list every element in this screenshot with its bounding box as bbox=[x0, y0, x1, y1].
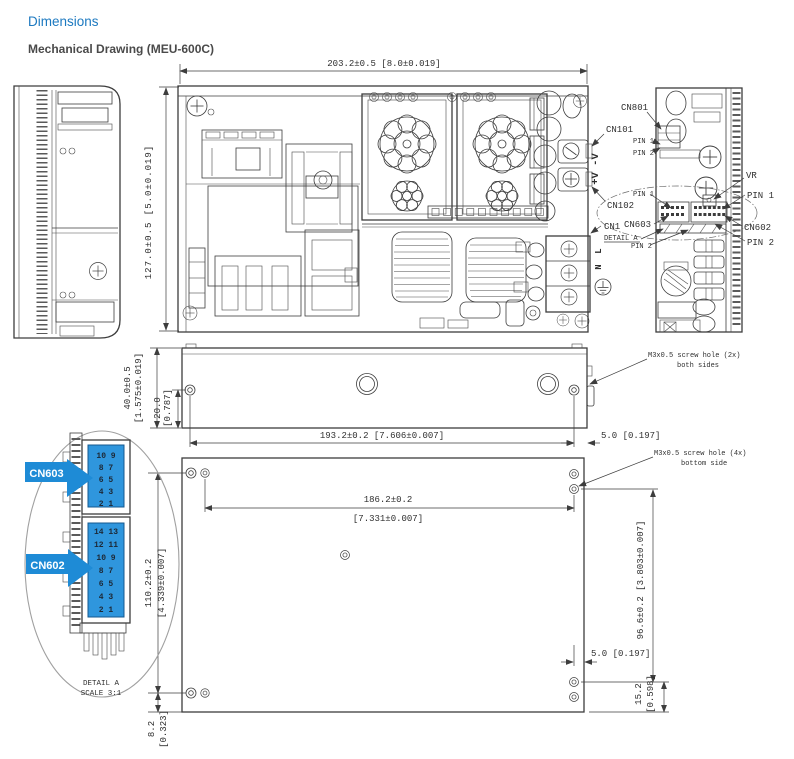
edge-mm: 8.2 bbox=[147, 721, 157, 737]
side-view-dimensions: 40.0±0.5 [1.575±0.019] 20.0 [0.787] 193.… bbox=[123, 348, 740, 447]
ground-symbol-icon bbox=[595, 279, 611, 295]
phillips-screw-icon bbox=[695, 177, 717, 199]
screw-note-line2: bottom side bbox=[681, 460, 727, 468]
label-neutral: N bbox=[594, 264, 604, 269]
cn603-highlight-label: CN603 bbox=[25, 459, 93, 497]
winding-bottom bbox=[486, 181, 518, 211]
label-cn603: CN603 bbox=[624, 220, 651, 230]
span-in: [7.331±0.007] bbox=[353, 514, 423, 524]
pcb-top-view bbox=[178, 86, 592, 332]
cn602-pin-row: 6 5 bbox=[99, 580, 114, 589]
cn602-pin-row: 10 9 bbox=[96, 554, 115, 563]
drawing-title: Mechanical Drawing (MEU-600C) bbox=[28, 42, 214, 56]
phillips-screw-icon bbox=[90, 263, 107, 280]
connector-cn801 bbox=[658, 126, 700, 158]
span-mm: 186.2±0.2 bbox=[364, 495, 413, 505]
datasheet-page: Dimensions Mechanical Drawing (MEU-600C) bbox=[0, 0, 794, 759]
cn602-highlight-label: CN602 bbox=[26, 549, 93, 587]
phillips-screw-icon bbox=[557, 314, 569, 326]
mounting-hole bbox=[570, 693, 579, 702]
detail-caption-line2: SCALE 3:1 bbox=[81, 690, 122, 698]
width-dimension: 203.2±0.5 [8.0±0.019] bbox=[327, 59, 440, 69]
screw-note-line1: M3x0.5 screw hole (2x) bbox=[648, 352, 740, 360]
label-line: L bbox=[594, 248, 604, 253]
hole-mm: 20.0 bbox=[153, 397, 163, 419]
cn602-pin-row: 12 11 bbox=[94, 541, 118, 550]
cn603-pin-row: 4 3 bbox=[99, 488, 114, 497]
screw-note-line2: both sides bbox=[677, 362, 719, 370]
screw-hole bbox=[201, 469, 210, 478]
power-transformer-block-1 bbox=[362, 94, 452, 220]
offset-dimension: 5.0 [0.197] bbox=[591, 649, 650, 659]
label-pin1-cn602: PIN 1 bbox=[747, 191, 774, 201]
output-choke-coil bbox=[661, 262, 691, 296]
left-side-view bbox=[14, 86, 120, 338]
cn603-pin-row: 10 9 bbox=[96, 452, 115, 461]
label-pin2: PIN 2 bbox=[633, 150, 654, 158]
cn602-label-text: CN602 bbox=[30, 560, 64, 572]
page-title: Dimensions bbox=[28, 14, 99, 29]
screw-note-line1: M3x0.5 screw hole (4x) bbox=[654, 450, 746, 458]
vent-hole bbox=[538, 374, 559, 395]
cn602-pin-row: 14 13 bbox=[94, 528, 118, 537]
power-transformer-block-2 bbox=[457, 94, 547, 220]
label-pin1-cn603: PIN 1 bbox=[633, 191, 654, 199]
heatsink-plate bbox=[208, 186, 358, 286]
heatsink-fins-2 bbox=[466, 238, 526, 302]
bottom-view: M3x0.5 screw hole (4x) bottom side 186.2… bbox=[144, 450, 746, 748]
fuse bbox=[460, 302, 500, 318]
cn603-pin-row: 8 7 bbox=[99, 464, 114, 473]
phillips-screw-icon bbox=[699, 146, 721, 168]
cn603-label-text: CN603 bbox=[29, 468, 63, 480]
cn602-pin-row: 8 7 bbox=[99, 567, 114, 576]
mounting-hole bbox=[186, 468, 196, 478]
label-cn102: CN102 bbox=[607, 201, 634, 211]
mechanical-drawing: 203.2±0.5 [8.0±0.019] 127.0±0.5 [5.0±0.0… bbox=[0, 0, 794, 759]
mounting-hole bbox=[185, 385, 195, 395]
screw-hole bbox=[570, 485, 579, 494]
right-dimension: 96.6±0.2 [3.803±0.007] bbox=[636, 521, 646, 640]
input-transformer bbox=[202, 130, 282, 178]
vr-potentiometer bbox=[703, 195, 716, 206]
label-cn602: CN602 bbox=[744, 223, 771, 233]
cn602-pin-row: 2 1 bbox=[99, 606, 114, 615]
screw-hole bbox=[569, 385, 579, 395]
label-vr: VR bbox=[746, 171, 757, 181]
mounting-hole bbox=[186, 688, 196, 698]
corner-in: [0.598] bbox=[646, 675, 656, 713]
connector-column bbox=[530, 98, 544, 204]
height-in: [1.575±0.019] bbox=[134, 353, 144, 423]
cn602-pin-row: 4 3 bbox=[99, 593, 114, 602]
cn603-pin-row: 2 1 bbox=[99, 500, 114, 509]
height-mm: 110.2±0.2 bbox=[144, 559, 154, 608]
label-pin2-cn603: PIN 2 bbox=[631, 243, 652, 251]
winding-top bbox=[378, 115, 436, 173]
edge-in: [0.323] bbox=[159, 710, 169, 748]
label-pin1: PIN 1 bbox=[633, 138, 654, 146]
winding-bottom bbox=[391, 181, 423, 211]
connector-cn602-side bbox=[691, 202, 727, 222]
side-elevation-view: 40.0±0.5 [1.575±0.019] 20.0 [0.787] 193.… bbox=[123, 344, 740, 447]
output-terminal-plus bbox=[558, 168, 592, 191]
length-dimension: 193.2±0.2 [7.606±0.007] bbox=[320, 431, 444, 441]
screw-hole bbox=[570, 678, 579, 687]
mounting-hole bbox=[570, 470, 579, 479]
vent-hole bbox=[357, 374, 378, 395]
corner-mm: 15.2 bbox=[634, 683, 644, 705]
offset-dimension: 5.0 [0.197] bbox=[601, 431, 660, 441]
label-output-polarity: +V -V bbox=[590, 153, 602, 185]
label-cn1: CN1 bbox=[604, 222, 620, 232]
height-mm: 40.0±0.5 bbox=[123, 366, 133, 409]
ac-input-terminal-block bbox=[546, 236, 590, 312]
center-hole bbox=[341, 551, 350, 560]
connector-pins bbox=[80, 623, 126, 659]
phillips-screw-icon bbox=[575, 314, 589, 328]
height-in: [4.339±0.007] bbox=[157, 548, 167, 618]
detail-a-view: 10 9 8 7 6 5 4 3 2 1 14 13 12 11 10 9 8 … bbox=[25, 431, 179, 698]
bottom-view-dimensions: M3x0.5 screw hole (4x) bottom side 186.2… bbox=[144, 450, 746, 748]
winding-top bbox=[473, 115, 531, 173]
detail-caption-line1: DETAIL A bbox=[83, 680, 120, 688]
cn603-pin-row: 6 5 bbox=[99, 476, 114, 485]
screw-hole bbox=[201, 689, 210, 698]
varistor-column bbox=[514, 242, 544, 301]
output-terminal-minus bbox=[558, 140, 592, 163]
capacitor-column bbox=[189, 248, 205, 308]
label-pin2-cn602: PIN 2 bbox=[747, 238, 774, 248]
label-cn101: CN101 bbox=[606, 125, 633, 135]
hole-in: [0.787] bbox=[163, 389, 173, 427]
heatsink-fins-1 bbox=[392, 232, 452, 302]
label-cn801: CN801 bbox=[621, 103, 648, 113]
height-dimension: 127.0±0.5 [5.0±0.019] bbox=[144, 145, 154, 279]
capacitor-stack bbox=[694, 240, 724, 300]
inlet-hole bbox=[506, 300, 540, 326]
callout-labels: CN801 CN101 PIN 1 PIN 2 +V -V CN102 PIN … bbox=[590, 103, 774, 295]
phillips-screw-icon bbox=[187, 96, 207, 116]
filter-choke bbox=[305, 230, 359, 316]
